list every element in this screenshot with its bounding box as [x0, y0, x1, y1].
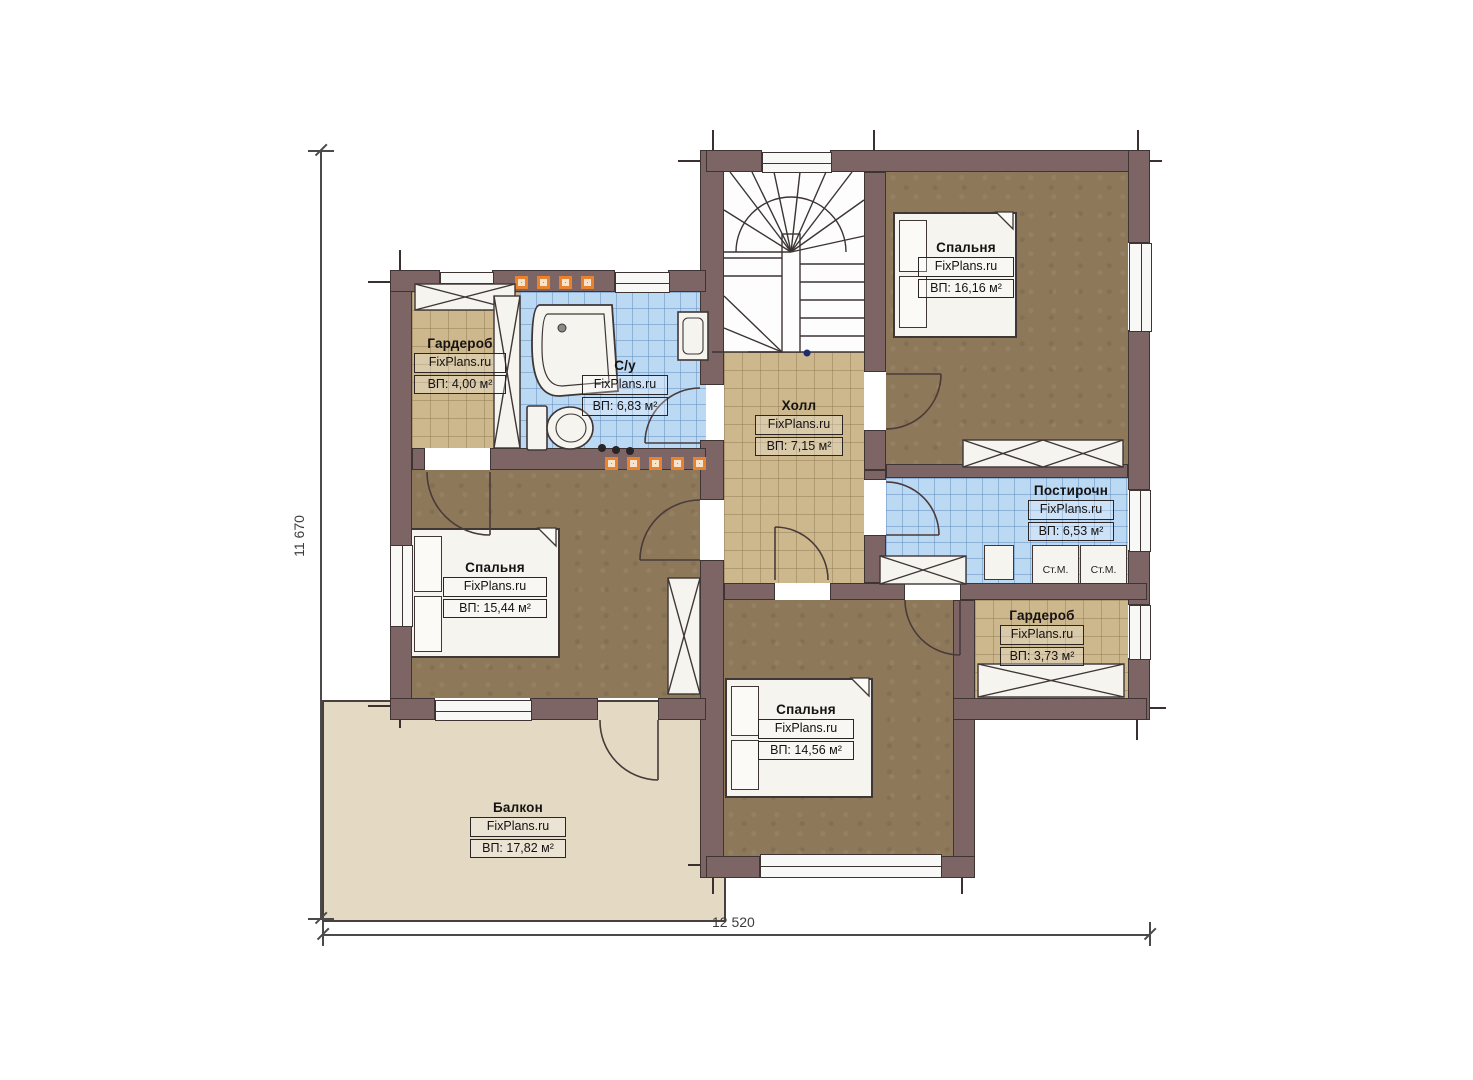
room-name: С/у	[582, 358, 668, 373]
orange-square-icon	[649, 457, 662, 470]
orange-square-icon	[693, 457, 706, 470]
room-label-bathroom: С/у FixPlans.ru ВП: 6,83 м²	[582, 358, 668, 416]
room-area-label: ВП: 7,15 м²	[755, 437, 843, 457]
window	[1129, 605, 1151, 660]
window	[762, 152, 832, 173]
pillow	[731, 686, 759, 736]
wall-segment	[864, 535, 886, 583]
room-area-label: ВП: 6,83 м²	[582, 397, 668, 417]
wall-segment	[886, 464, 1128, 478]
wall-segment	[700, 150, 724, 385]
orange-square-icon	[537, 276, 550, 289]
room-area-label: ВП: 17,82 м²	[470, 839, 566, 859]
room-area-label: ВП: 14,56 м²	[758, 741, 854, 761]
dimension-width-label: 12 520	[712, 914, 755, 930]
wall-segment	[706, 150, 762, 172]
wall-segment	[864, 172, 886, 372]
watermark-label: FixPlans.ru	[414, 353, 506, 373]
wall-segment	[658, 698, 706, 720]
wall-segment	[412, 448, 425, 470]
wall-segment	[390, 270, 440, 292]
wall-segment	[830, 150, 1150, 172]
room-area-label: ВП: 4,00 м²	[414, 375, 506, 395]
room-label-laundry: Постирочн FixPlans.ru ВП: 6,53 м²	[1028, 483, 1114, 541]
orange-square-icon	[581, 276, 594, 289]
watermark-label: FixPlans.ru	[758, 719, 854, 739]
wall-segment	[953, 600, 975, 878]
window	[1129, 243, 1152, 332]
room-name: Постирочн	[1028, 483, 1114, 498]
wall-segment	[1128, 330, 1150, 490]
dimension-height-label: 11 670	[291, 515, 307, 557]
wall-segment	[492, 270, 615, 292]
wall-segment	[1128, 150, 1150, 243]
pillow	[731, 740, 759, 790]
wall-segment	[530, 698, 598, 720]
laundry-sink	[984, 545, 1014, 580]
room-name: Гардероб	[414, 336, 506, 351]
washer-label: Ст.М.	[1091, 564, 1117, 576]
window	[440, 272, 494, 293]
wall-segment	[940, 856, 975, 878]
orange-square-icon	[559, 276, 572, 289]
wall-segment	[864, 430, 886, 470]
room-label-hall: Холл FixPlans.ru ВП: 7,15 м²	[755, 398, 843, 456]
wall-segment	[864, 470, 886, 480]
window	[760, 854, 942, 878]
room-name: Спальня	[758, 702, 854, 717]
room-name: Балкон	[470, 800, 566, 815]
window	[1129, 490, 1151, 552]
stairwell-floor	[712, 172, 864, 352]
wall-segment	[953, 698, 1147, 720]
orange-square-icon	[515, 276, 528, 289]
watermark-label: FixPlans.ru	[918, 257, 1014, 277]
window	[390, 545, 413, 627]
floor-plan: Ст.М. Ст.М.	[0, 0, 1473, 1080]
room-label-balcony: Балкон FixPlans.ru ВП: 17,82 м²	[470, 800, 566, 858]
window	[615, 272, 670, 293]
window	[435, 700, 532, 721]
room-area-label: ВП: 16,16 м²	[918, 279, 1014, 299]
room-hall-floor	[724, 352, 864, 583]
wall-segment	[390, 698, 435, 720]
watermark-label: FixPlans.ru	[755, 415, 843, 435]
room-area-label: ВП: 15,44 м²	[443, 599, 547, 619]
orange-square-icon	[671, 457, 684, 470]
room-label-bedroom-bottom: Спальня FixPlans.ru ВП: 14,56 м²	[758, 702, 854, 760]
room-area-label: ВП: 3,73 м²	[1000, 647, 1084, 667]
room-name: Спальня	[443, 560, 547, 575]
room-label-wardrobe-left: Гардероб FixPlans.ru ВП: 4,00 м²	[414, 336, 506, 394]
wall-segment	[960, 583, 1147, 600]
room-label-bedroom-left: Спальня FixPlans.ru ВП: 15,44 м²	[443, 560, 547, 618]
room-area-label: ВП: 6,53 м²	[1028, 522, 1114, 542]
washer-label: Ст.М.	[1043, 564, 1069, 576]
orange-square-icon	[605, 457, 618, 470]
room-name: Гардероб	[1000, 608, 1084, 623]
watermark-label: FixPlans.ru	[470, 817, 566, 837]
room-name: Холл	[755, 398, 843, 413]
watermark-label: FixPlans.ru	[443, 577, 547, 597]
orange-square-icon	[627, 457, 640, 470]
room-name: Спальня	[918, 240, 1014, 255]
pillow	[414, 596, 442, 652]
watermark-label: FixPlans.ru	[1028, 500, 1114, 520]
wall-segment	[706, 856, 760, 878]
room-label-wardrobe-right: Гардероб FixPlans.ru ВП: 3,73 м²	[1000, 608, 1084, 666]
room-label-bedroom-top-right: Спальня FixPlans.ru ВП: 16,16 м²	[918, 240, 1014, 298]
watermark-label: FixPlans.ru	[582, 375, 668, 395]
wall-segment	[390, 270, 412, 720]
watermark-label: FixPlans.ru	[1000, 625, 1084, 645]
wall-segment	[830, 583, 905, 600]
pillow	[414, 536, 442, 592]
wall-segment	[668, 270, 706, 292]
wall-segment	[724, 583, 775, 600]
